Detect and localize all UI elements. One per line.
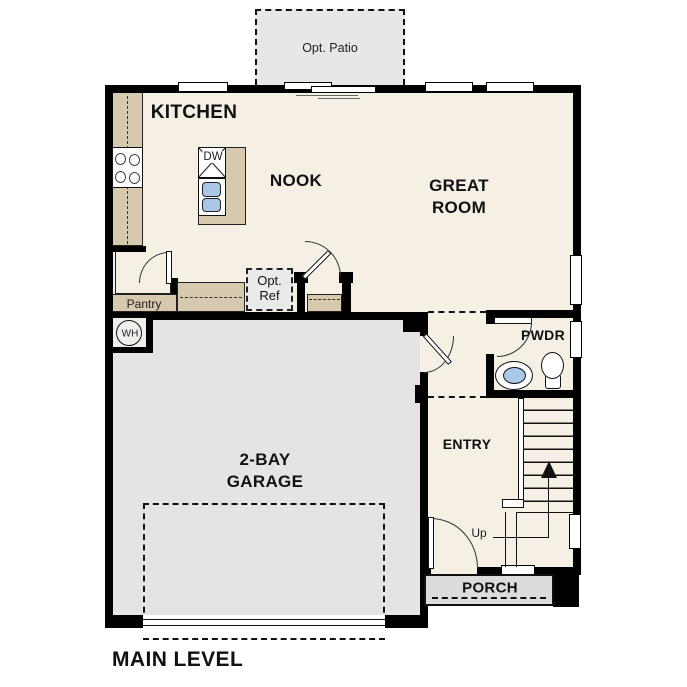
wall-segment xyxy=(339,272,353,283)
burner-icon xyxy=(115,153,126,165)
counter-dash-line xyxy=(180,297,242,298)
nook-counter xyxy=(177,282,245,312)
pantry-label: Pantry xyxy=(127,297,162,311)
wall-segment xyxy=(105,312,428,320)
stair-railing xyxy=(518,398,524,505)
opt-ref-label: Ref xyxy=(248,288,291,303)
floor-plan: Opt. Patio xyxy=(0,0,687,687)
toilet-bowl xyxy=(541,352,564,379)
sink-basin xyxy=(202,182,221,197)
wall-segment xyxy=(553,575,579,607)
great-room-label: ROOM xyxy=(432,198,486,218)
slider-track-line xyxy=(318,98,360,99)
opt-ref-label: Opt. xyxy=(248,273,291,288)
porch: PORCH xyxy=(424,574,554,606)
alcove-floor-strip xyxy=(307,294,342,312)
slider-track-line xyxy=(296,95,358,96)
sliding-door xyxy=(311,86,376,93)
wall-segment xyxy=(403,312,428,332)
up-arrow-head-icon xyxy=(541,461,557,478)
stair-landing-line xyxy=(517,512,573,513)
counter-dash-line xyxy=(309,299,340,300)
stair-wall-line xyxy=(505,512,506,567)
up-arrow-shaft xyxy=(548,472,549,538)
wall-segment xyxy=(486,310,494,324)
burner-icon xyxy=(129,154,140,166)
opening-dashed-line xyxy=(428,396,486,398)
opt-patio-label: Opt. Patio xyxy=(302,41,358,55)
window xyxy=(425,82,473,92)
burner-icon xyxy=(129,172,140,184)
dishwasher: DW xyxy=(198,147,226,178)
sink-basin xyxy=(202,198,221,212)
wall-segment xyxy=(113,347,153,353)
pantry-floor-strip: Pantry xyxy=(113,294,177,312)
dishwasher-label: DW xyxy=(202,151,223,163)
wall-segment xyxy=(415,385,428,403)
window xyxy=(569,514,581,549)
garage-label: GARAGE xyxy=(227,472,303,492)
pwdr-sink-basin xyxy=(503,367,526,384)
opt-patio-area: Opt. Patio xyxy=(255,9,405,85)
nook-label: NOOK xyxy=(270,171,322,191)
front-door xyxy=(428,517,434,569)
burner-icon xyxy=(115,171,126,183)
plan-title: MAIN LEVEL xyxy=(112,648,243,672)
wall-segment xyxy=(342,283,351,313)
garage-door-dashed-outline xyxy=(143,503,385,623)
cooktop xyxy=(112,147,143,188)
wall-segment xyxy=(297,283,305,313)
kitchen-label: KITCHEN xyxy=(151,102,238,124)
window xyxy=(178,82,228,92)
water-heater: WH xyxy=(116,320,142,346)
window xyxy=(486,82,534,92)
up-arrow-tail xyxy=(493,537,548,538)
garage-door-panel xyxy=(143,619,385,626)
great-room-label: GREAT xyxy=(429,176,489,196)
porch-label: PORCH xyxy=(462,580,518,597)
opening-dashed-line xyxy=(428,311,486,313)
garage-door-dashed-line xyxy=(143,638,385,640)
water-heater-label: WH xyxy=(122,329,139,340)
kitchen-sink xyxy=(198,178,226,216)
stair-railing-end xyxy=(502,499,524,508)
window xyxy=(570,255,582,305)
wall-segment xyxy=(486,390,580,398)
stair-wall-line xyxy=(516,512,517,567)
up-label: Up xyxy=(471,526,486,540)
garage-label: 2-BAY xyxy=(240,450,291,470)
pantry-door xyxy=(166,251,172,284)
opt-ref-box: Opt. Ref xyxy=(246,268,293,311)
porch-dashed-line xyxy=(432,597,546,599)
entry-label: ENTRY xyxy=(443,436,491,452)
window xyxy=(570,321,582,358)
